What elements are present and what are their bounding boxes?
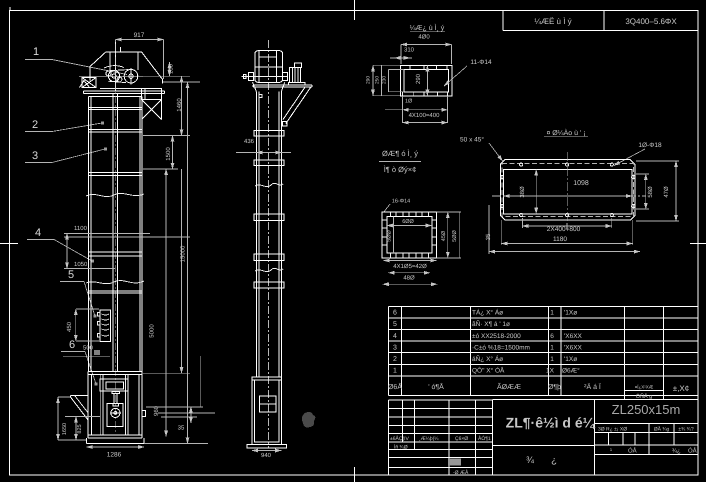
svg-text:5ØØ: 5ØØ	[387, 229, 393, 241]
svg-text:4: 4	[393, 333, 397, 340]
svg-text:ÓÑÅ g: ÓÑÅ g	[636, 393, 653, 400]
svg-text:·C±ó %18=1500mm: ·C±ó %18=1500mm	[472, 344, 530, 351]
svg-text:48Ø: 48Ø	[403, 275, 415, 282]
svg-text:ØÆ¶ ó Ì¸ ý: ØÆ¶ ó Ì¸ ý	[382, 149, 418, 158]
svg-text:¹: ¹	[610, 447, 612, 454]
svg-text:±ó XX2518-2000: ±ó XX2518-2000	[472, 333, 521, 340]
svg-text:4X100=400: 4X100=400	[409, 112, 441, 119]
svg-text:917: 917	[134, 32, 145, 39]
svg-text:'1Xø: '1Xø	[564, 356, 577, 363]
svg-text:47Ø: 47Ø	[663, 186, 670, 198]
svg-text:ZL¶·ê½ì d é¼: ZL¶·ê½ì d é¼	[506, 415, 596, 431]
svg-text:1Ø-Φ18: 1Ø-Φ18	[638, 142, 662, 149]
svg-text:58Ø: 58Ø	[647, 186, 654, 198]
svg-text:ØÅ ¾g: ØÅ ¾g	[654, 425, 670, 432]
svg-text:²Ä á Ï: ²Ä á Ï	[584, 383, 601, 391]
svg-text:1100: 1100	[74, 225, 88, 232]
svg-text:6: 6	[69, 339, 75, 351]
svg-text:940: 940	[261, 452, 272, 459]
svg-text:1460: 1460	[176, 98, 183, 112]
svg-text:3Ø R¿ ±¡ XØ: 3Ø R¿ ±¡ XØ	[598, 426, 627, 432]
svg-text:±¾ ¾?: ±¾ ¾?	[678, 426, 693, 432]
svg-text:250: 250	[375, 76, 381, 84]
svg-text:ãÑ· X¶ á ' 1ø: ãÑ· X¶ á ' 1ø	[472, 320, 510, 328]
svg-text:500: 500	[83, 345, 94, 352]
svg-text:'1Xø: '1Xø	[564, 310, 577, 317]
svg-text:±6ÅÇ(IV: ±6ÅÇ(IV	[390, 435, 410, 442]
svg-text:45Ø: 45Ø	[441, 230, 447, 241]
svg-text:Ìñ ¾Ø: Ìñ ¾Ø	[394, 443, 408, 450]
svg-text:6: 6	[550, 333, 554, 340]
svg-text:35: 35	[178, 425, 185, 432]
svg-text:230: 230	[382, 76, 388, 84]
svg-text:450: 450	[66, 321, 73, 332]
svg-text:1: 1	[33, 46, 39, 58]
svg-text:310: 310	[404, 47, 415, 54]
svg-text:'X6XX: 'X6XX	[564, 344, 583, 351]
svg-text:ÅÓ¶1: ÅÓ¶1	[478, 435, 491, 442]
svg-text:35: 35	[485, 233, 492, 240]
svg-text:6ØØ: 6ØØ	[402, 219, 414, 225]
svg-text:1286: 1286	[107, 452, 122, 459]
svg-text:Ø6Å: Ø6Å	[388, 382, 402, 391]
svg-text:Ç6×Ø: Ç6×Ø	[455, 436, 468, 442]
svg-text:áÑ¿ X° Áø: áÑ¿ X° Áø	[472, 355, 503, 363]
svg-text:¸Æ¼þ(¼: ¸Æ¼þ(¼	[419, 436, 439, 442]
svg-text:ZL250x15m: ZL250x15m	[612, 402, 681, 417]
svg-text:11-Φ14: 11-Φ14	[470, 59, 492, 66]
svg-text:¤Ï¿X¹XÆ: ¤Ï¿X¹XÆ	[635, 384, 654, 389]
svg-text:6: 6	[393, 310, 397, 317]
svg-text:4X1Ø5=42Ø: 4X1Ø5=42Ø	[393, 263, 427, 270]
svg-text:1050: 1050	[74, 261, 88, 268]
svg-text:¿: ¿	[551, 455, 557, 466]
svg-text:38Ø: 38Ø	[519, 186, 526, 198]
svg-text:Ì¶ ò Øý×¢: Ì¶ ò Øý×¢	[384, 165, 417, 174]
svg-text:2: 2	[393, 356, 397, 363]
svg-text:1: 1	[550, 356, 554, 363]
svg-text:5: 5	[68, 269, 74, 281]
svg-text:50 x 45°: 50 x 45°	[460, 137, 484, 144]
svg-text:¤ Ø¼Ào ù ' ¡: ¤ Ø¼Ào ù ' ¡	[546, 128, 585, 137]
svg-text:QÔ" X° ÓÅ: QÔ" X° ÓÅ	[472, 367, 505, 375]
svg-text:1500: 1500	[165, 147, 172, 161]
svg-text:-Ø ÆÅ: -Ø ÆÅ	[453, 469, 469, 476]
svg-text:' ó¶Å: ' ó¶Å	[428, 382, 444, 391]
svg-text:4: 4	[35, 227, 41, 239]
svg-text:ÓÅ: ÓÅ	[628, 446, 637, 454]
svg-text:¾: ¾	[526, 455, 535, 466]
svg-text:3: 3	[393, 344, 397, 351]
svg-text:15000: 15000	[180, 245, 187, 262]
svg-text:290: 290	[366, 76, 372, 84]
svg-text:TÁ¿ X° Áø: TÁ¿ X° Áø	[472, 309, 503, 317]
svg-text:5ØØ: 5ØØ	[452, 229, 458, 241]
svg-text:436: 436	[244, 138, 255, 145]
svg-text:2X400=800: 2X400=800	[547, 226, 581, 233]
svg-text:1650: 1650	[62, 423, 68, 435]
svg-text:16-Φ14: 16-Φ14	[392, 199, 410, 205]
svg-text:5: 5	[393, 321, 397, 328]
svg-text:1098: 1098	[573, 180, 589, 187]
svg-text:1: 1	[393, 368, 397, 375]
svg-text:4Ø0: 4Ø0	[418, 34, 430, 41]
svg-text:¼Æ¿ ù Ì¸ ý: ¼Æ¿ ù Ì¸ ý	[410, 23, 445, 32]
svg-text:Ø6Æ°: Ø6Æ°	[562, 368, 580, 375]
svg-text:1: 1	[550, 310, 554, 317]
svg-text:1180: 1180	[553, 236, 567, 243]
svg-text:'X6XX: 'X6XX	[564, 333, 583, 340]
svg-text:3Q400–5.6ΦΧ: 3Q400–5.6ΦΧ	[625, 17, 677, 26]
svg-text:3: 3	[32, 150, 38, 162]
svg-text:825: 825	[77, 424, 83, 433]
svg-text:2: 2	[32, 119, 38, 131]
svg-text:5000: 5000	[149, 324, 156, 338]
svg-text:±,X¢: ±,X¢	[673, 384, 689, 393]
svg-text:Ø¶þ: Ø¶þ	[548, 383, 561, 391]
svg-text:290: 290	[415, 73, 422, 84]
svg-text:¼ÆË ù Ì ý: ¼ÆË ù Ì ý	[534, 17, 571, 26]
svg-text:¾¿: ¾¿	[672, 447, 681, 454]
svg-text:150: 150	[168, 63, 175, 74]
svg-text:1: 1	[550, 344, 554, 351]
svg-text:1Ø: 1Ø	[405, 99, 413, 105]
svg-text:ÓÅ: ÓÅ	[688, 446, 697, 454]
svg-text:1X: 1X	[546, 368, 555, 375]
svg-text:ÃØÆÆ: ÃØÆÆ	[497, 382, 521, 391]
